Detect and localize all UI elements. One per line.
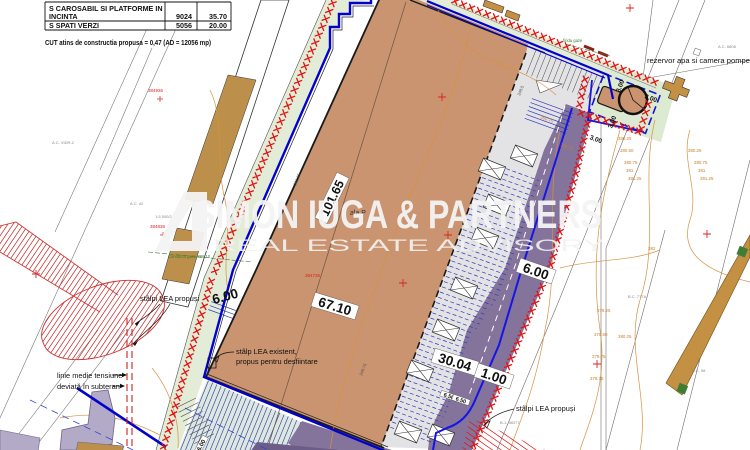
svg-text:382: 382 [648, 246, 656, 251]
svg-text:B.C. 98: B.C. 98 [692, 368, 706, 373]
svg-text:A.C. 6808: A.C. 6808 [718, 44, 737, 49]
svg-text:B.C. 777A: B.C. 777A [628, 294, 647, 299]
svg-text:stâlp LEA existent,: stâlp LEA existent, [236, 347, 297, 356]
svg-text:5056: 5056 [176, 21, 192, 30]
svg-text:378.75: 378.75 [590, 376, 604, 381]
svg-text:384836: 384836 [150, 224, 166, 229]
svg-text:384736: 384736 [305, 273, 321, 278]
svg-text:REAL ESTATE ADVISORY: REAL ESTATE ADVISORY [213, 236, 605, 255]
svg-text:S SPATI VERZI: S SPATI VERZI [49, 21, 99, 30]
svg-text:INCINTA: INCINTA [49, 12, 78, 21]
svg-text:SIMON IUGA & PARTNERS: SIMON IUGA & PARTNERS [194, 193, 602, 237]
svg-text:stâlpi LEA propuși: stâlpi LEA propuși [140, 294, 200, 303]
svg-text:rezervor apa si camera pompe: rezervor apa si camera pompe [647, 56, 750, 65]
svg-text:propus pentru desfiintare: propus pentru desfiintare [236, 357, 318, 366]
svg-text:CUT atins de constructia propu: CUT atins de constructia propusa = 0,47 … [45, 40, 211, 47]
svg-text:380.75: 380.75 [694, 160, 708, 165]
svg-text:384936: 384936 [148, 88, 164, 93]
svg-text:379.25: 379.25 [597, 308, 611, 313]
svg-text:381.25: 381.25 [628, 176, 642, 181]
svg-text:9024: 9024 [176, 12, 192, 21]
svg-text:380.25: 380.25 [618, 136, 632, 141]
svg-text:A.C. VIDR-2: A.C. VIDR-2 [52, 140, 75, 145]
svg-text:379.75: 379.75 [592, 354, 606, 359]
svg-text:linie medie tensiune: linie medie tensiune [57, 371, 122, 380]
svg-text:381.25: 381.25 [700, 176, 714, 181]
svg-text:stâlpi LEA propuși: stâlpi LEA propuși [516, 404, 576, 413]
svg-text:379.50: 379.50 [594, 332, 608, 337]
svg-text:1:5 500/2: 1:5 500/2 [155, 214, 172, 219]
svg-text:380.25: 380.25 [688, 148, 702, 153]
svg-text:deviată în subteran: deviată în subteran [57, 382, 120, 391]
svg-text:A.C. 42: A.C. 42 [130, 201, 144, 206]
svg-text:35.70: 35.70 [209, 12, 227, 21]
svg-text:B-1. 98377: B-1. 98377 [500, 420, 520, 425]
svg-text:firida gaze: firida gaze [563, 38, 583, 43]
svg-text:380.50: 380.50 [620, 148, 634, 153]
svg-text:381: 381 [698, 168, 706, 173]
svg-text:380.25: 380.25 [618, 334, 632, 339]
svg-text:20.00: 20.00 [209, 21, 227, 30]
svg-text:380.75: 380.75 [624, 160, 638, 165]
svg-text:Conducta gaze 386.10: Conducta gaze 386.10 [168, 254, 211, 259]
svg-text:381: 381 [626, 168, 634, 173]
